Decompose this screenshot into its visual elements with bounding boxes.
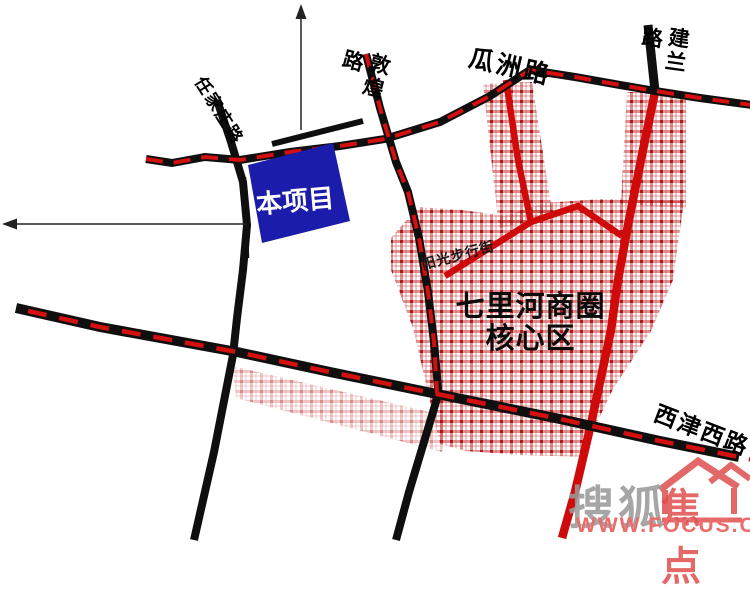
project-label: 本项目 (250, 177, 341, 222)
road-label-jianlan-suffix: 路 (640, 27, 664, 51)
location-map: 本项目 任家庄路 路 敦煌 瓜洲路 路 建兰 阳光步行街 西津西路 七里河商圈 … (0, 0, 750, 560)
road-label-jianlan: 路 建兰 (637, 22, 689, 76)
road-renjiazhuang (194, 100, 247, 540)
west-arrow-icon (2, 219, 17, 230)
district-title: 七里河商圈 核心区 (448, 291, 613, 356)
district-title-line2: 核心区 (448, 323, 613, 355)
north-arrow-icon (296, 4, 307, 19)
district-title-line1: 七里河商圈 (448, 291, 613, 323)
road-label-dunhuang-suffix: 路 (340, 49, 366, 75)
watermark-url: WWW.FOCUS.CN (576, 514, 750, 538)
